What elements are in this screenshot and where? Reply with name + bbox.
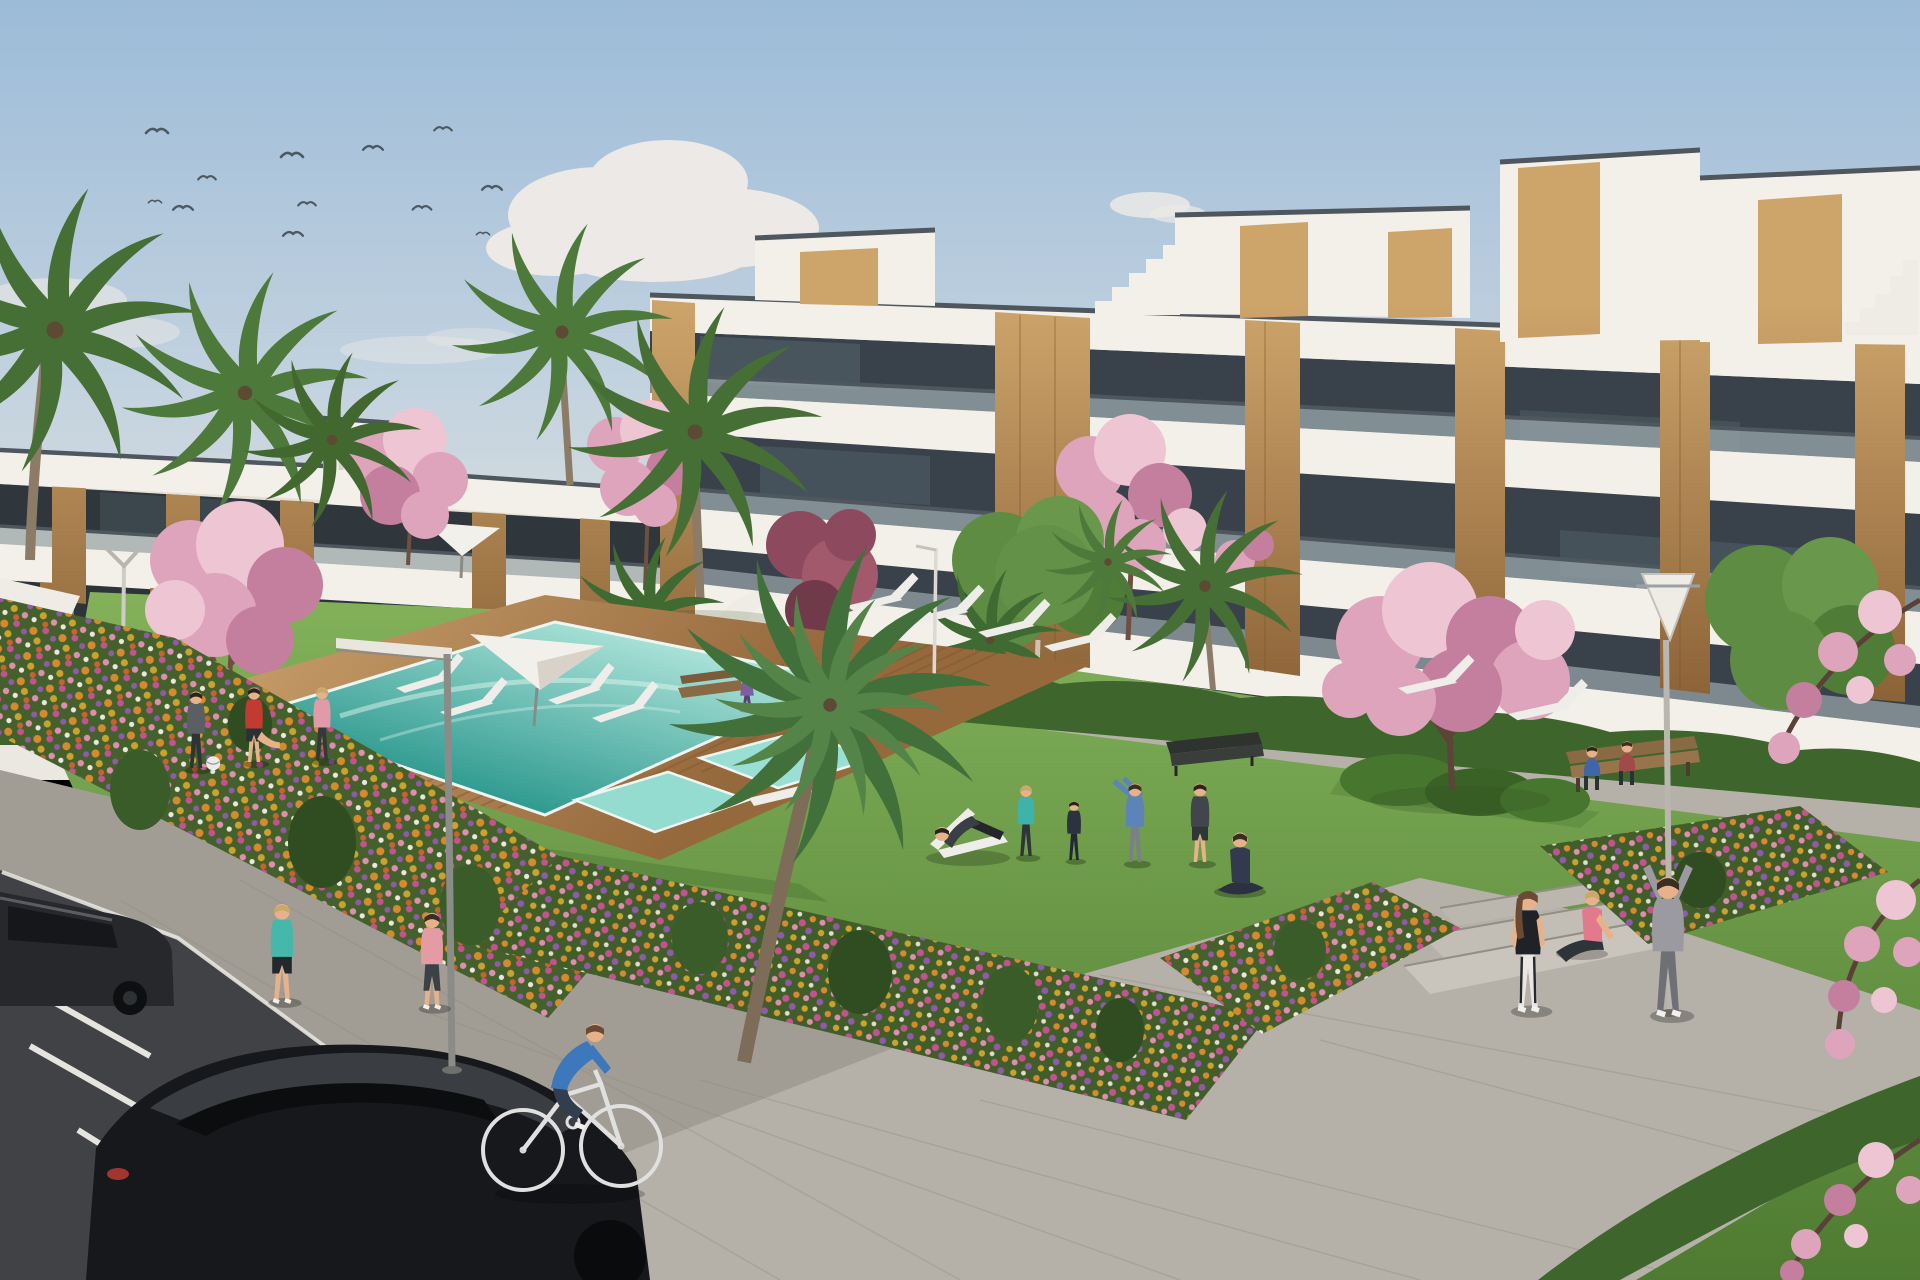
render-image: Sunny 3D visualization of a modern white…: [0, 0, 1920, 1280]
